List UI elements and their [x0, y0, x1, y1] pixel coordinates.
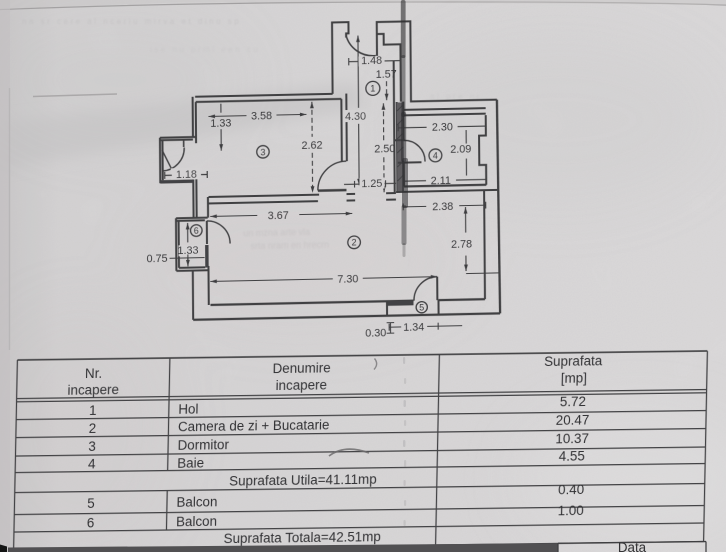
svg-text:2.38: 2.38 [432, 201, 453, 213]
svg-text:1.57: 1.57 [376, 68, 397, 80]
svg-text:1.48: 1.48 [361, 55, 382, 67]
svg-text:1: 1 [89, 403, 97, 418]
svg-text:Baie: Baie [177, 456, 204, 471]
svg-text:srta nram en hrecrn: srta nram en hrecrn [250, 239, 329, 251]
svg-text:2.30: 2.30 [432, 122, 453, 134]
svg-text:[mp]: [mp] [561, 371, 587, 386]
svg-text:Camera de zi + Bucatarie: Camera de zi + Bucatarie [178, 417, 330, 434]
svg-text:0.30: 0.30 [365, 327, 386, 339]
svg-text:Denumire: Denumire [272, 360, 330, 376]
svg-text:Data: Data [618, 540, 647, 552]
svg-text:4.55: 4.55 [559, 449, 585, 464]
svg-text:incapere: incapere [275, 377, 327, 393]
svg-text:3.58: 3.58 [251, 110, 272, 122]
svg-text:1.33: 1.33 [210, 117, 231, 129]
svg-text:Dormitor: Dormitor [177, 437, 229, 453]
svg-text:1.34: 1.34 [403, 322, 424, 334]
svg-text:4: 4 [88, 456, 96, 471]
svg-text:1: 1 [370, 84, 375, 94]
svg-text:2: 2 [89, 421, 97, 436]
svg-text:20.47: 20.47 [556, 413, 590, 428]
svg-text:2.50: 2.50 [374, 143, 395, 155]
svg-text:1.00: 1.00 [558, 503, 584, 518]
svg-text:2: 2 [352, 238, 357, 248]
svg-text:6: 6 [87, 515, 95, 530]
svg-text:2.11: 2.11 [431, 175, 451, 187]
svg-text:0.75: 0.75 [147, 253, 168, 265]
svg-text:4.30: 4.30 [345, 110, 366, 122]
svg-text:Balcon: Balcon [176, 494, 217, 510]
svg-text:0.40: 0.40 [558, 482, 584, 497]
svg-text:1.25: 1.25 [361, 178, 382, 190]
svg-text:5: 5 [419, 302, 424, 312]
svg-text:Hol: Hol [178, 402, 198, 417]
svg-text:3: 3 [88, 439, 96, 454]
svg-text:2.62: 2.62 [301, 140, 322, 152]
svg-text:5: 5 [87, 496, 95, 511]
svg-text:1.18: 1.18 [176, 169, 197, 181]
svg-text:2.09: 2.09 [450, 144, 471, 156]
svg-text:3: 3 [260, 147, 265, 157]
svg-text:Suprafata Utila=41.11mp: Suprafata Utila=41.11mp [229, 472, 377, 489]
svg-text:incapere: incapere [67, 382, 119, 398]
svg-text:5.72: 5.72 [560, 394, 586, 409]
svg-text:10.37: 10.37 [555, 431, 589, 446]
svg-text:2.78: 2.78 [451, 238, 472, 250]
svg-text:6: 6 [194, 226, 199, 236]
svg-text:Suprafata Totala=42.51mp: Suprafata Totala=42.51mp [224, 529, 381, 546]
svg-text:4: 4 [433, 151, 438, 161]
svg-text:un mzna arte vla: un mzna arte vla [243, 227, 310, 238]
svg-text:Suprafata: Suprafata [544, 353, 603, 369]
svg-text:Balcon: Balcon [176, 514, 217, 530]
svg-text:Nr.: Nr. [85, 366, 102, 381]
svg-text:7.30: 7.30 [337, 273, 358, 285]
svg-text:3.67: 3.67 [268, 210, 289, 222]
